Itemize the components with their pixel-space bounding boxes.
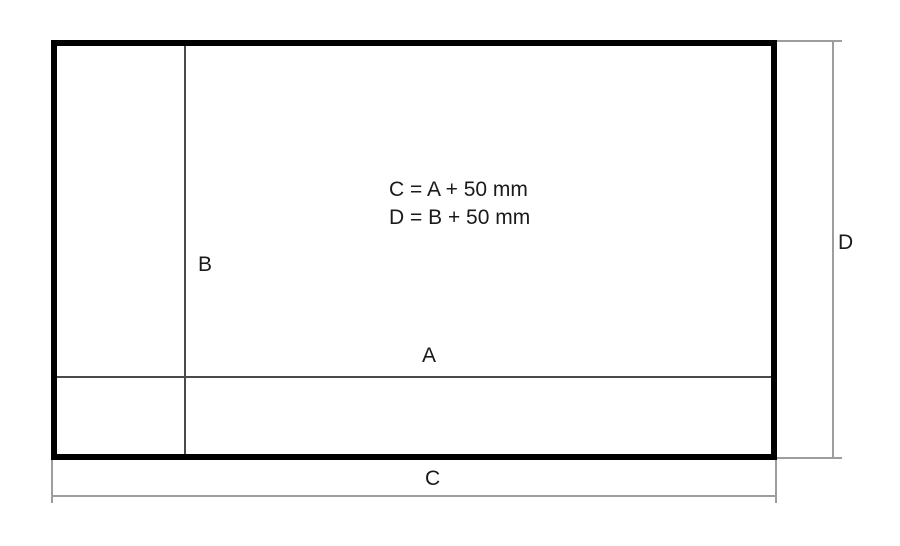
formula-line-c: C = A + 50 mm: [389, 176, 530, 204]
label-inner-height-b: B: [198, 253, 212, 277]
inner-vertical-line-b: [184, 46, 186, 454]
dimension-line-c: [51, 495, 777, 497]
dimension-diagram: C = A + 50 mm D = B + 50 mm B A D C: [0, 0, 900, 546]
outer-rectangle: [51, 40, 777, 460]
formula-line-d: D = B + 50 mm: [389, 204, 530, 232]
formula-block: C = A + 50 mm D = B + 50 mm: [389, 176, 530, 232]
label-outer-width-c: C: [425, 467, 440, 491]
label-outer-height-d: D: [838, 231, 853, 255]
label-inner-width-a: A: [422, 344, 436, 368]
inner-horizontal-line-a: [57, 376, 771, 378]
dimension-line-d: [832, 40, 834, 458]
